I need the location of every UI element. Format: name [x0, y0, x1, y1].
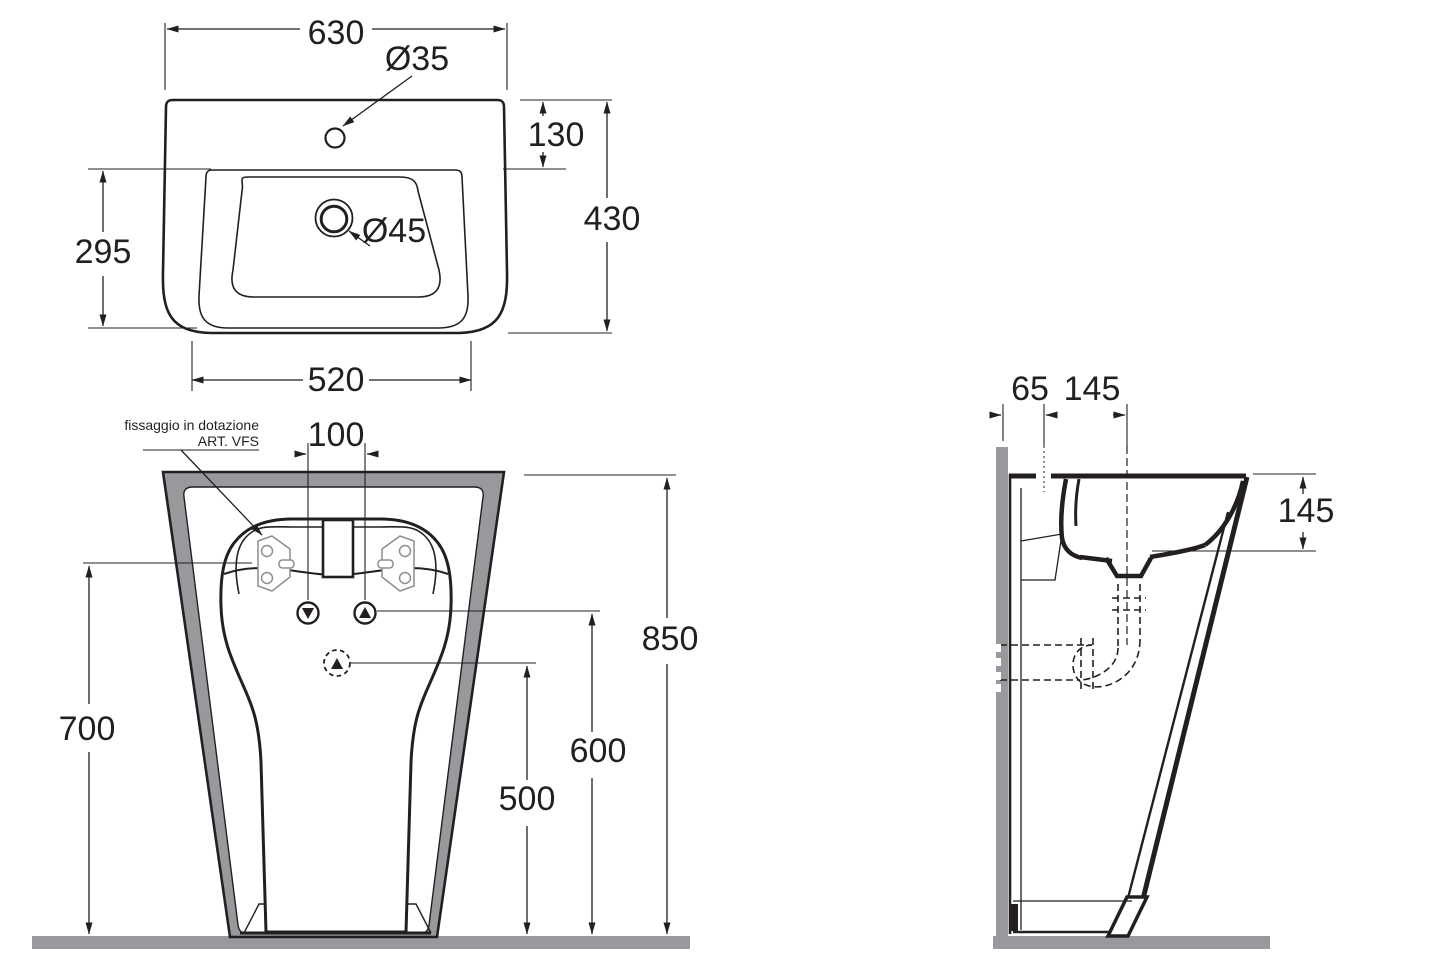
faucet-hole: [326, 129, 345, 148]
dim-drain-wall-distance: 145: [1064, 370, 1121, 408]
side-view: 65 145 145: [990, 370, 1334, 949]
side-plumbing: [1000, 584, 1146, 692]
dim-supply-height: 600: [570, 732, 627, 770]
dim-drain-hole: Ø45: [362, 212, 426, 250]
dim-overall-depth: 430: [584, 200, 641, 238]
supply-symbol-right: [355, 603, 376, 624]
washbasin-drawing: 630 Ø35 130 430 295 Ø45 520: [0, 0, 1440, 979]
supply-symbol-left: [298, 603, 319, 624]
top-view-extension-lines: [88, 23, 612, 391]
top-view-outer-outline: [163, 100, 507, 333]
side-foot: [1108, 897, 1147, 936]
dim-fixing-height: 700: [59, 710, 116, 748]
dim-overall-height: 850: [642, 620, 699, 658]
top-view-rim-line: [199, 170, 468, 328]
dim-basin-depth: 295: [75, 233, 132, 271]
drain-hole-inner: [321, 206, 347, 232]
dim-faucet-hole: Ø35: [385, 40, 449, 78]
technical-drawing-page: 630 Ø35 130 430 295 Ø45 520: [0, 0, 1440, 979]
front-tap-block: [323, 520, 353, 577]
dim-tap-spacing: 100: [308, 416, 365, 454]
side-shelf: [1021, 534, 1062, 580]
side-dimension-lines: [990, 415, 1303, 549]
dim-wall-offset: 65: [1011, 370, 1049, 408]
fixing-note-line2: ART. VFS: [198, 433, 259, 449]
side-floor: [993, 936, 1270, 949]
dim-front-width: 520: [308, 361, 365, 399]
dim-deck-depth: 130: [528, 116, 585, 154]
side-wall: [996, 447, 1008, 947]
top-view: 630 Ø35 130 430 295 Ø45 520: [75, 14, 641, 399]
dim-top-width: 630: [308, 14, 365, 52]
side-base-block: [1011, 904, 1018, 931]
dim-drain-height: 500: [499, 780, 556, 818]
fixing-note-line1: fissaggio in dotazione: [124, 417, 259, 433]
dim-bowl-depth: 145: [1278, 492, 1335, 530]
front-view: fissaggio in dotazione ART. VFS 100 700 …: [32, 416, 698, 949]
drain-symbol: [324, 650, 350, 676]
side-front-slant-outer: [1143, 477, 1247, 899]
